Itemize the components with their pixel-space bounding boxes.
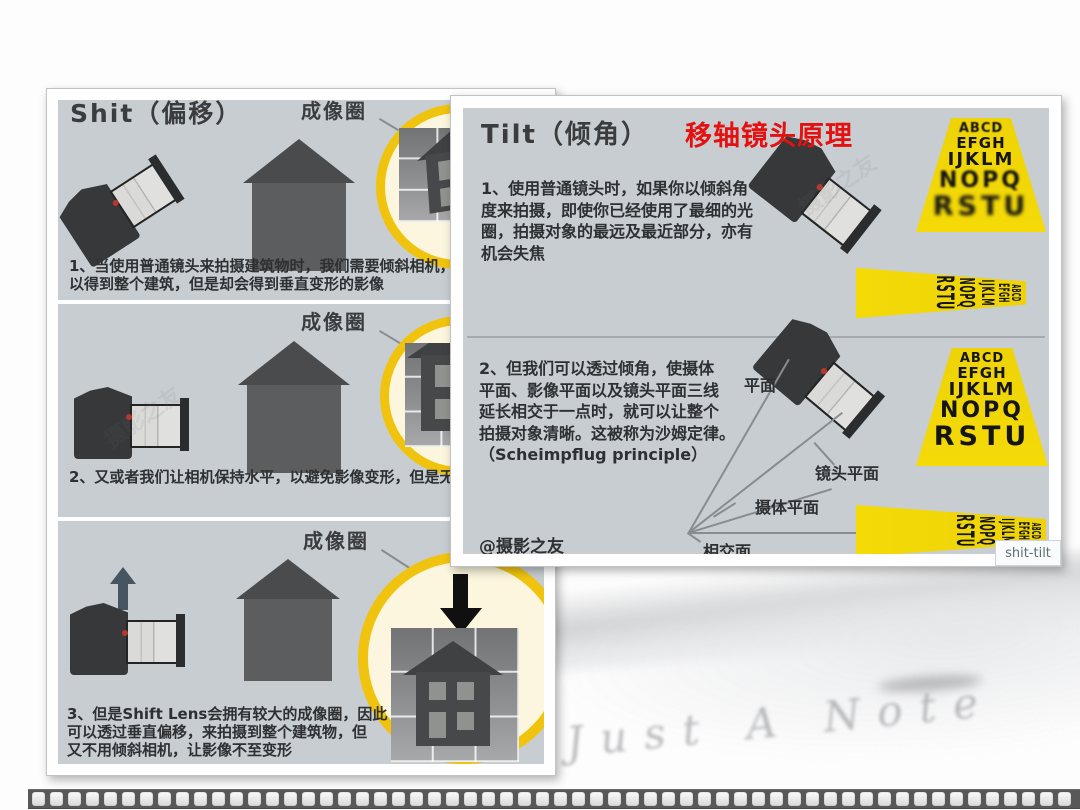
projected-image-3 bbox=[391, 628, 519, 762]
tilt-paragraph-2: 2、但我们可以透过倾角，使摄体 平面、影像平面以及镜头平面三线 延长相交于一点时… bbox=[479, 358, 735, 466]
imaging-circle-label-3: 成像圈 bbox=[303, 525, 369, 554]
sprocket-hole bbox=[230, 792, 243, 806]
tilt-section-divider bbox=[467, 336, 1045, 338]
sprocket-hole bbox=[932, 792, 945, 806]
letter-row: RSTU bbox=[934, 423, 1031, 451]
sprocket-hole bbox=[896, 792, 909, 806]
para-line: 2、但我们可以透过倾角，使摄体 bbox=[479, 358, 735, 380]
sprocket-hole bbox=[734, 792, 747, 806]
intersect-plane-label: 相交面 bbox=[703, 538, 751, 554]
sprocket-hole bbox=[158, 792, 171, 806]
letter-row: IJKLM bbox=[977, 280, 995, 307]
sprocket-hole bbox=[824, 792, 837, 806]
sprocket-hole bbox=[356, 792, 369, 806]
letter-row: RSTU bbox=[932, 275, 957, 310]
caption-line: 可以透过垂直偏移，来拍摄到整个建筑物，但 bbox=[67, 723, 387, 741]
para-line: 平面、影像平面以及镜头平面三线 bbox=[479, 380, 735, 402]
down-arrow bbox=[453, 574, 468, 610]
letter-row: NOPQ bbox=[940, 400, 1024, 423]
letter-row: ABCD bbox=[1030, 523, 1042, 539]
sprocket-hole bbox=[590, 792, 603, 806]
sprocket-hole bbox=[986, 792, 999, 806]
film-strip bbox=[28, 789, 1080, 809]
sprocket-hole bbox=[536, 792, 549, 806]
sprocket-hole bbox=[338, 792, 351, 806]
slide: Just A Note Shit（偏移） 成像圈 bbox=[0, 0, 1080, 810]
sprocket-hole bbox=[68, 792, 81, 806]
caption-line: 3、但是Shift Lens会拥有较大的成像圈，因此 bbox=[67, 705, 387, 723]
sprocket-hole bbox=[410, 792, 423, 806]
sprocket-hole bbox=[1004, 792, 1017, 806]
sprocket-hole bbox=[608, 792, 621, 806]
sprocket-hole bbox=[320, 792, 333, 806]
shift-lens-camera-3 bbox=[70, 598, 190, 683]
sprocket-hole bbox=[662, 792, 675, 806]
sprocket-hole bbox=[680, 792, 693, 806]
lens-plane-label: 镜头平面 bbox=[815, 460, 879, 484]
letter-chart-flat-1: ABCD EFGH IJKLM NOPQ RSTU bbox=[856, 268, 1026, 318]
tilted-camera-1 bbox=[58, 138, 197, 275]
sprocket-hole bbox=[464, 792, 477, 806]
sprocket-hole bbox=[788, 792, 801, 806]
sprocket-hole bbox=[644, 792, 657, 806]
imaging-circle-label-1: 成像圈 bbox=[301, 100, 367, 124]
shift-title: Shit（偏移） bbox=[70, 100, 242, 130]
caption-line: 1、当使用普通镜头来拍摄建筑物时，我们需要倾斜相机， bbox=[69, 257, 454, 275]
sprocket-hole bbox=[266, 792, 279, 806]
letter-row: ABCD bbox=[1010, 284, 1022, 301]
shift-caption-3: 3、但是Shift Lens会拥有较大的成像圈，因此 可以透过垂直偏移，来拍摄到… bbox=[67, 705, 387, 759]
sprocket-hole bbox=[518, 792, 531, 806]
sprocket-hole bbox=[554, 792, 567, 806]
sprocket-hole bbox=[1040, 792, 1053, 806]
sprocket-hole bbox=[122, 792, 135, 806]
letter-row: EFGH bbox=[1015, 522, 1030, 541]
para-line: 度来拍摄，即使你已经使用了最细的光 bbox=[481, 200, 753, 222]
sprocket-hole bbox=[500, 792, 513, 806]
para-line: 拍摄对象清晰。这被称为沙姆定律。 bbox=[479, 423, 735, 445]
sprocket-hole bbox=[626, 792, 639, 806]
sprocket-hole bbox=[968, 792, 981, 806]
para-line: （Scheimpflug principle） bbox=[479, 444, 735, 466]
letter-row: RSTU bbox=[933, 193, 1030, 221]
sprocket-hole bbox=[176, 792, 189, 806]
sprocket-hole bbox=[194, 792, 207, 806]
letter-row: RSTU bbox=[952, 514, 977, 547]
sprocket-hole bbox=[50, 792, 63, 806]
sprocket-hole bbox=[446, 792, 459, 806]
credit-label: @摄影之友 bbox=[479, 532, 564, 554]
sprocket-hole bbox=[1022, 792, 1035, 806]
sprocket-hole bbox=[212, 792, 225, 806]
up-arrow-head bbox=[110, 567, 136, 584]
imaging-circle-label-2: 成像圈 bbox=[301, 306, 367, 335]
sprocket-hole bbox=[32, 792, 45, 806]
building-2 bbox=[238, 338, 350, 473]
sprocket-hole bbox=[140, 792, 153, 806]
letter-row: NOPQ bbox=[939, 170, 1023, 193]
sprocket-hole bbox=[248, 792, 261, 806]
caption-line: 又不用倾斜相机，让影像不至变形 bbox=[67, 741, 387, 759]
plane-label: 平面 bbox=[744, 372, 776, 396]
para-line: 1、使用普通镜头时，如果你以倾斜角 bbox=[481, 178, 753, 200]
sprocket-hole bbox=[86, 792, 99, 806]
sprocket-hole bbox=[392, 792, 405, 806]
letter-row: EFGH bbox=[995, 283, 1010, 302]
sprocket-hole bbox=[482, 792, 495, 806]
tilt-paragraph-1: 1、使用普通镜头时，如果你以倾斜角 度来拍摄，即使你已经使用了最细的光 圈，拍摄… bbox=[481, 178, 753, 264]
tilt-title: Tilt（倾角） bbox=[481, 114, 649, 151]
building-1 bbox=[243, 136, 355, 271]
sprocket-hole bbox=[284, 792, 297, 806]
sprocket-hole bbox=[842, 792, 855, 806]
letter-row: NOPQ bbox=[957, 278, 978, 309]
sprocket-hole bbox=[770, 792, 783, 806]
para-line: 圈，拍摄对象的最远及最近部分，亦有 bbox=[481, 221, 753, 243]
sprocket-hole bbox=[716, 792, 729, 806]
sprocket-hole bbox=[698, 792, 711, 806]
sprocket-hole bbox=[1058, 792, 1071, 806]
tilt-panel-content: Tilt（倾角） 1、使用普通镜头时，如果你以倾斜角 度来拍摄，即使你已经使用了… bbox=[463, 108, 1049, 554]
building-3 bbox=[236, 556, 340, 681]
sprocket-hole bbox=[104, 792, 117, 806]
para-line: 延长相交于一点时，就可以让整个 bbox=[479, 401, 735, 423]
letter-chart-sharp: ABCD EFGH IJKLM NOPQ RSTU bbox=[916, 348, 1048, 466]
caption-line: 以得到整个建筑，但是却会得到垂直变形的影像 bbox=[69, 275, 454, 293]
sprocket-hole bbox=[572, 792, 585, 806]
letter-chart-blurred: ABCD EFGH IJKLM NOPQ RSTU bbox=[916, 118, 1046, 232]
sprocket-hole bbox=[302, 792, 315, 806]
sprocket-hole bbox=[914, 792, 927, 806]
tilt-diagram-panel: Tilt（倾角） 1、使用普通镜头时，如果你以倾斜角 度来拍摄，即使你已经使用了… bbox=[450, 95, 1062, 567]
sprocket-hole bbox=[752, 792, 765, 806]
sprocket-hole bbox=[878, 792, 891, 806]
shift-caption-1: 1、当使用普通镜头来拍摄建筑物时，我们需要倾斜相机， 以得到整个建筑，但是却会得… bbox=[69, 257, 454, 293]
para-line: 机会失焦 bbox=[481, 243, 753, 265]
sprocket-hole bbox=[428, 792, 441, 806]
subject-plane-label: 摄体平面 bbox=[755, 494, 819, 518]
sprocket-hole bbox=[806, 792, 819, 806]
sprocket-hole bbox=[950, 792, 963, 806]
filename-tooltip: shit-tilt bbox=[995, 540, 1061, 566]
slide-red-title: 移轴镜头原理 bbox=[685, 114, 853, 153]
sprocket-hole bbox=[374, 792, 387, 806]
sprocket-hole bbox=[860, 792, 873, 806]
